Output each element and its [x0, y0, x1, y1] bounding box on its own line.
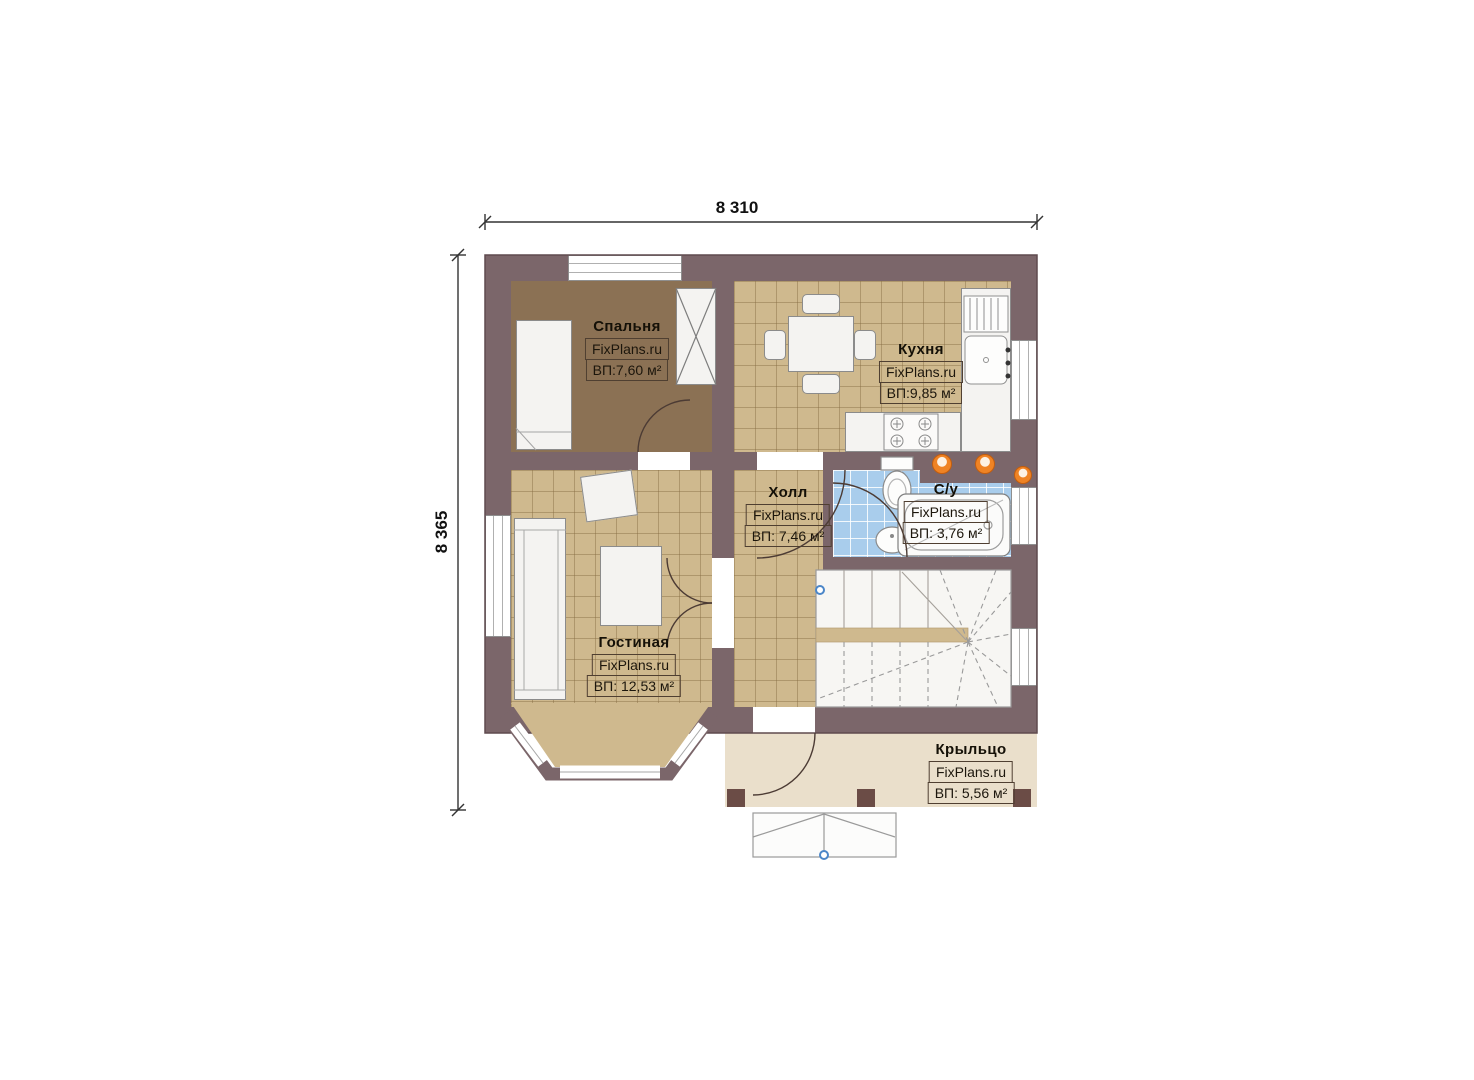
chair — [764, 330, 786, 360]
entrance-door-opening — [753, 707, 815, 733]
porch-post — [857, 789, 875, 807]
bedroom-door-opening — [638, 452, 690, 470]
room-name: Гостиная — [587, 634, 681, 651]
floor-plan-canvas: 8 310 8 365 — [0, 0, 1474, 1080]
kitchen-counter-right — [961, 288, 1011, 452]
watermark-box: FixPlans.ru — [929, 761, 1013, 783]
porch-post — [1013, 789, 1031, 807]
dimension-top-label: 8 310 — [716, 198, 759, 218]
room-area: ВП:9,85 м² — [880, 382, 963, 404]
watermark-box: FixPlans.ru — [592, 654, 676, 676]
room-label-bathroom: С/у FixPlans.ru ВП: 3,76 м² — [903, 481, 990, 544]
wall-kitchen-bath — [833, 452, 920, 470]
dining-table — [788, 316, 854, 372]
marker-blue-icon — [820, 851, 828, 859]
room-area: ВП:7,60 м² — [586, 359, 669, 381]
room-label-kitchen: Кухня FixPlans.ru ВП:9,85 м² — [879, 341, 963, 404]
room-label-living-room: Гостиная FixPlans.ru ВП: 12,53 м² — [587, 634, 681, 697]
wardrobe — [676, 288, 716, 385]
watermark-box: FixPlans.ru — [879, 361, 963, 383]
dimension-left-label: 8 365 — [432, 511, 452, 554]
watermark-box: FixPlans.ru — [904, 501, 988, 523]
watermark-box: FixPlans.ru — [746, 504, 830, 526]
watermark-box: FixPlans.ru — [585, 338, 669, 360]
entrance-steps — [753, 813, 896, 859]
window-living-left — [485, 515, 511, 637]
room-name: Кухня — [879, 341, 963, 358]
window-kitchen-right — [1011, 340, 1037, 420]
wall-living-hall-upper — [712, 470, 734, 558]
room-label-bedroom: Спальня FixPlans.ru ВП:7,60 м² — [585, 318, 669, 381]
armchair — [580, 470, 638, 523]
room-area: ВП: 3,76 м² — [903, 522, 990, 544]
room-area: ВП: 5,56 м² — [928, 782, 1015, 804]
bed — [516, 320, 572, 450]
french-door-opening — [712, 558, 734, 648]
room-area: ВП: 7,46 м² — [745, 525, 832, 547]
porch-post — [727, 789, 745, 807]
wall-bedroom-corner — [690, 452, 734, 470]
kitchen-counter-bottom — [845, 412, 961, 452]
room-name: С/у — [903, 481, 990, 498]
window-stairs-right — [1011, 628, 1037, 686]
hall-door-opening — [757, 452, 823, 470]
wall-hall-stub — [734, 452, 757, 470]
room-area: ВП: 12,53 м² — [587, 675, 681, 697]
fixture-orange-icon — [975, 454, 995, 474]
staircase-floor — [816, 570, 1011, 707]
dimension-left-line — [450, 249, 466, 816]
room-label-hall: Холл FixPlans.ru ВП: 7,46 м² — [745, 484, 832, 547]
wall-living-hall-lower — [712, 648, 734, 707]
coffee-table — [600, 546, 662, 626]
room-name: Спальня — [585, 318, 669, 335]
window-bathroom-right — [1011, 487, 1037, 545]
fixture-orange-icon — [932, 454, 952, 474]
dimension-top-line — [479, 214, 1043, 230]
room-name: Крыльцо — [928, 741, 1015, 758]
room-name: Холл — [745, 484, 832, 501]
chair — [802, 294, 840, 314]
chair — [854, 330, 876, 360]
window-bedroom-top — [568, 255, 682, 281]
wall-bathroom-stairs — [823, 557, 1011, 570]
fixture-orange-icon — [1014, 466, 1032, 484]
wall-bedroom-living — [511, 452, 638, 470]
sofa — [514, 518, 566, 700]
chair — [802, 374, 840, 394]
room-label-porch: Крыльцо FixPlans.ru ВП: 5,56 м² — [928, 741, 1015, 804]
